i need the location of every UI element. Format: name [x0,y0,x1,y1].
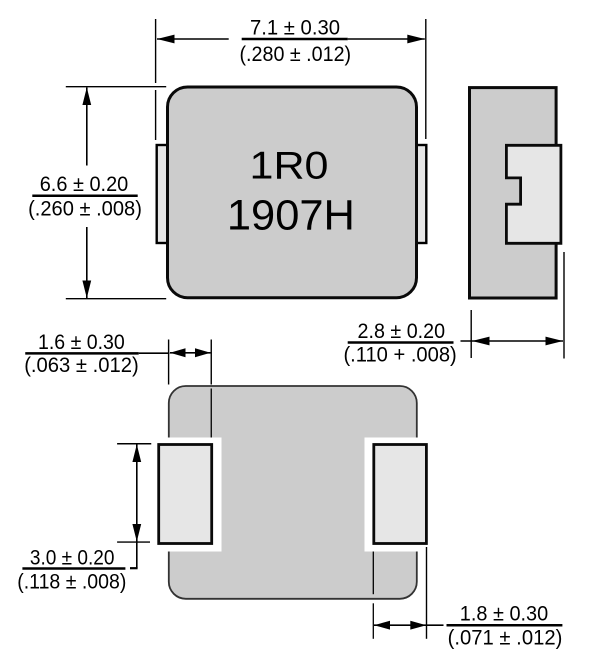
svg-text:(.280 ± .012): (.280 ± .012) [240,41,352,66]
svg-text:(.118 ± .008): (.118 ± .008) [17,569,126,594]
svg-text:1907H: 1907H [227,192,355,240]
svg-text:2.8 ± 0.20: 2.8 ± 0.20 [358,318,446,343]
svg-text:(.110 + .008): (.110 + .008) [343,342,456,367]
svg-text:(.063 ± .012): (.063 ± .012) [24,352,139,377]
svg-text:1.8 ± 0.30: 1.8 ± 0.30 [460,601,548,626]
svg-text:(.071 ± .012): (.071 ± .012) [448,624,563,649]
svg-text:3.0 ± 0.20: 3.0 ± 0.20 [30,545,115,570]
svg-text:1R0: 1R0 [250,145,329,188]
svg-text:6.6 ± 0.20: 6.6 ± 0.20 [40,171,129,196]
svg-text:7.1 ± 0.30: 7.1 ± 0.30 [250,14,340,39]
svg-text:(.260 ± .008): (.260 ± .008) [28,195,142,220]
svg-text:1.6 ± 0.30: 1.6 ± 0.30 [38,329,125,354]
